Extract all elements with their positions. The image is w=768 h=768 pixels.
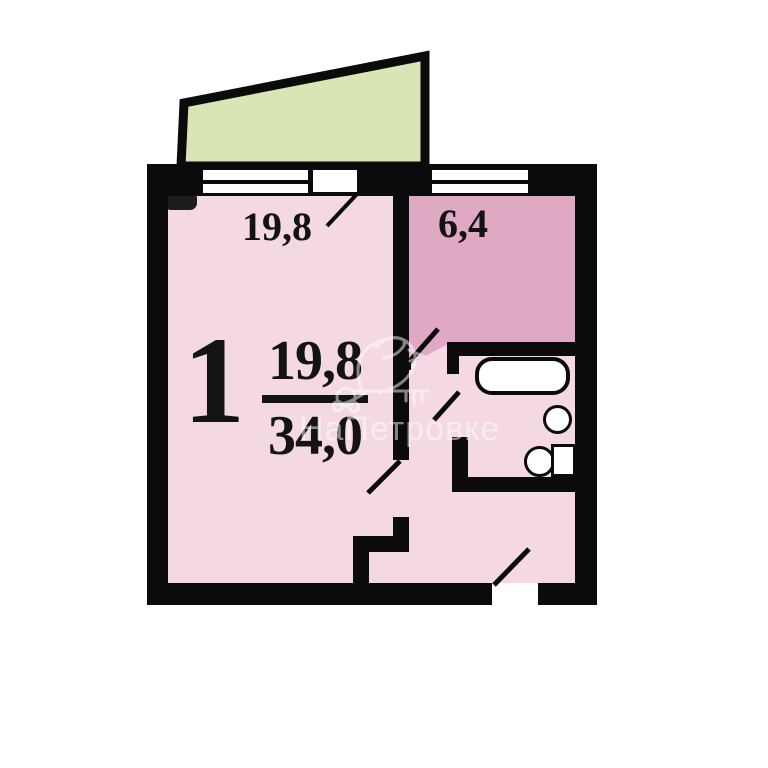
bird-body xyxy=(358,338,415,393)
bird-on-key-logo-icon xyxy=(334,338,429,412)
bird-eye xyxy=(402,341,405,344)
watermark: НаПетровке xyxy=(0,0,768,768)
key-teeth xyxy=(406,391,422,405)
watermark-text: НаПетровке xyxy=(299,410,500,448)
floor-plan-canvas: 19,8 6,4 1 19,8 34,0 НаПетровке xyxy=(0,0,768,768)
